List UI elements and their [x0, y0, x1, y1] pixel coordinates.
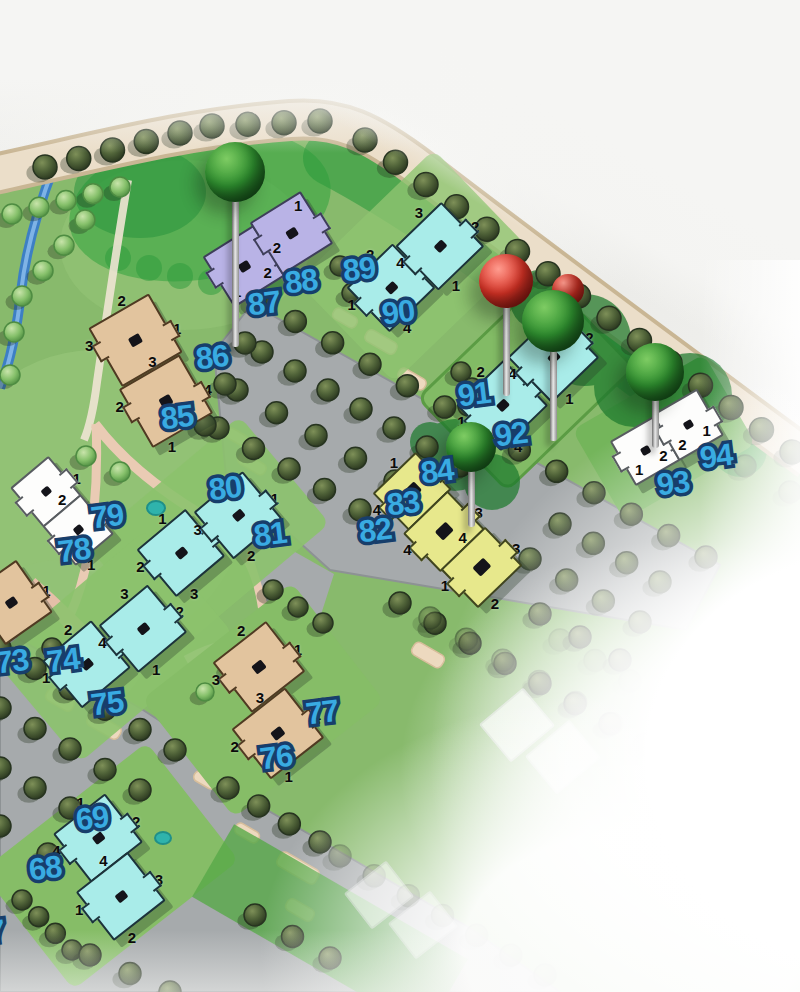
unit-number: 2: [263, 265, 271, 280]
unit-number: 1: [167, 440, 175, 455]
entrance-mark: [384, 281, 398, 295]
unit-number: 2: [471, 219, 479, 234]
unit-number: 1: [173, 321, 181, 336]
unit-number: 2: [175, 604, 183, 619]
unit-number: 3: [85, 339, 93, 354]
unit-number: 1: [293, 643, 301, 658]
unit-number: 4: [403, 542, 411, 557]
block-number-88[interactable]: 88: [283, 264, 319, 299]
entrance-mark: [433, 239, 447, 253]
entrance-mark: [495, 398, 509, 412]
pin-ball: [479, 254, 533, 308]
unit-number: 1: [42, 583, 50, 598]
unit-number: 3: [212, 672, 220, 687]
unit-number: 3: [256, 690, 264, 705]
entrance-mark: [4, 596, 18, 610]
unit-number: 3: [148, 354, 156, 369]
pin-ball: [522, 290, 584, 352]
unit-number: 2: [136, 559, 144, 574]
block-number-77[interactable]: 77: [304, 695, 340, 730]
pin-ball: [446, 422, 496, 472]
unit-number: 4: [98, 635, 106, 650]
entrance-mark: [231, 508, 245, 522]
entrance-mark: [79, 657, 93, 671]
unit-number: 2: [64, 622, 72, 637]
unit-number: 2: [116, 399, 124, 414]
block-number-91[interactable]: 91: [456, 377, 492, 412]
unit-number: 1: [451, 278, 459, 293]
unit-number: 2: [58, 492, 66, 507]
unit-number: 3: [190, 586, 198, 601]
unit-number: 2: [132, 814, 140, 829]
block-number-75[interactable]: 75: [89, 686, 125, 721]
unit-number: 2: [118, 293, 126, 308]
unit-number: 2: [237, 623, 245, 638]
block-number-68[interactable]: 68: [27, 851, 63, 886]
entrance-mark: [639, 445, 651, 456]
unit-number: 1: [294, 199, 302, 214]
block-number-78[interactable]: 78: [56, 533, 92, 568]
block-number-87[interactable]: 87: [246, 286, 282, 321]
unit-number: 1: [565, 391, 573, 406]
unit-number: 1: [702, 424, 710, 439]
entrance-mark: [434, 522, 453, 541]
entrance-mark: [136, 622, 150, 636]
unit-number: 1: [347, 297, 355, 312]
block-number-85[interactable]: 85: [159, 400, 195, 435]
unit-number: 4: [396, 255, 404, 270]
unit-number: 2: [659, 449, 667, 464]
entrance-mark: [284, 226, 298, 239]
block-number-76[interactable]: 76: [258, 740, 294, 775]
block-number-94[interactable]: 94: [698, 439, 734, 474]
unit-number: 1: [152, 662, 160, 677]
pin-ball: [626, 343, 684, 401]
unit-number: 2: [247, 549, 255, 564]
unit-number: 1: [635, 462, 643, 477]
unit-number: 1: [270, 491, 278, 506]
unit-number: 3: [120, 587, 128, 602]
unit-number: 1: [390, 454, 398, 469]
unit-number: 1: [441, 578, 449, 593]
unit-number: 4: [459, 530, 467, 545]
unit-number: 2: [491, 596, 499, 611]
entrance-mark: [40, 486, 52, 498]
block-number-69[interactable]: 69: [74, 801, 110, 836]
unit-number: 2: [678, 437, 686, 452]
block-number-84[interactable]: 84: [419, 454, 455, 489]
block-number-89[interactable]: 89: [341, 252, 377, 287]
unit-number: 2: [273, 240, 281, 255]
unit-number: 1: [158, 511, 166, 526]
entrance-mark: [128, 333, 143, 348]
unit-number: 1: [75, 902, 83, 917]
block-number-74[interactable]: 74: [45, 643, 81, 678]
block-number-73[interactable]: 73: [0, 644, 30, 679]
block-number-93[interactable]: 93: [655, 466, 691, 501]
unit-number: 3: [474, 505, 482, 520]
unit-number: 4: [99, 854, 107, 869]
entrance-mark: [472, 558, 491, 577]
block-number-92[interactable]: 92: [493, 417, 529, 452]
entrance-mark: [682, 419, 694, 430]
block-number-86[interactable]: 86: [194, 340, 230, 375]
block-number-79[interactable]: 79: [89, 499, 125, 534]
pond: [155, 832, 171, 844]
pin-ball: [205, 142, 265, 202]
unit-number: 1: [73, 471, 81, 486]
unit-number: 3: [193, 521, 201, 536]
unit-number: 2: [231, 739, 239, 754]
block-number-81[interactable]: 81: [252, 517, 288, 552]
unit-number: 3: [414, 206, 422, 221]
unit-number: 3: [512, 541, 520, 556]
entrance-mark: [114, 889, 128, 903]
unit-number: 3: [154, 873, 162, 888]
block-number-83[interactable]: 83: [385, 486, 421, 521]
block-number-90[interactable]: 90: [380, 295, 416, 330]
unit-number: 4: [203, 382, 211, 397]
entrance-mark: [174, 546, 188, 560]
entrance-mark: [251, 659, 267, 674]
master-plan-map: 1221213434212134342112212134342112211243…: [0, 0, 800, 992]
unit-number: 2: [128, 930, 136, 945]
block-number-80[interactable]: 80: [207, 471, 243, 506]
unit-number: 2: [585, 330, 593, 345]
